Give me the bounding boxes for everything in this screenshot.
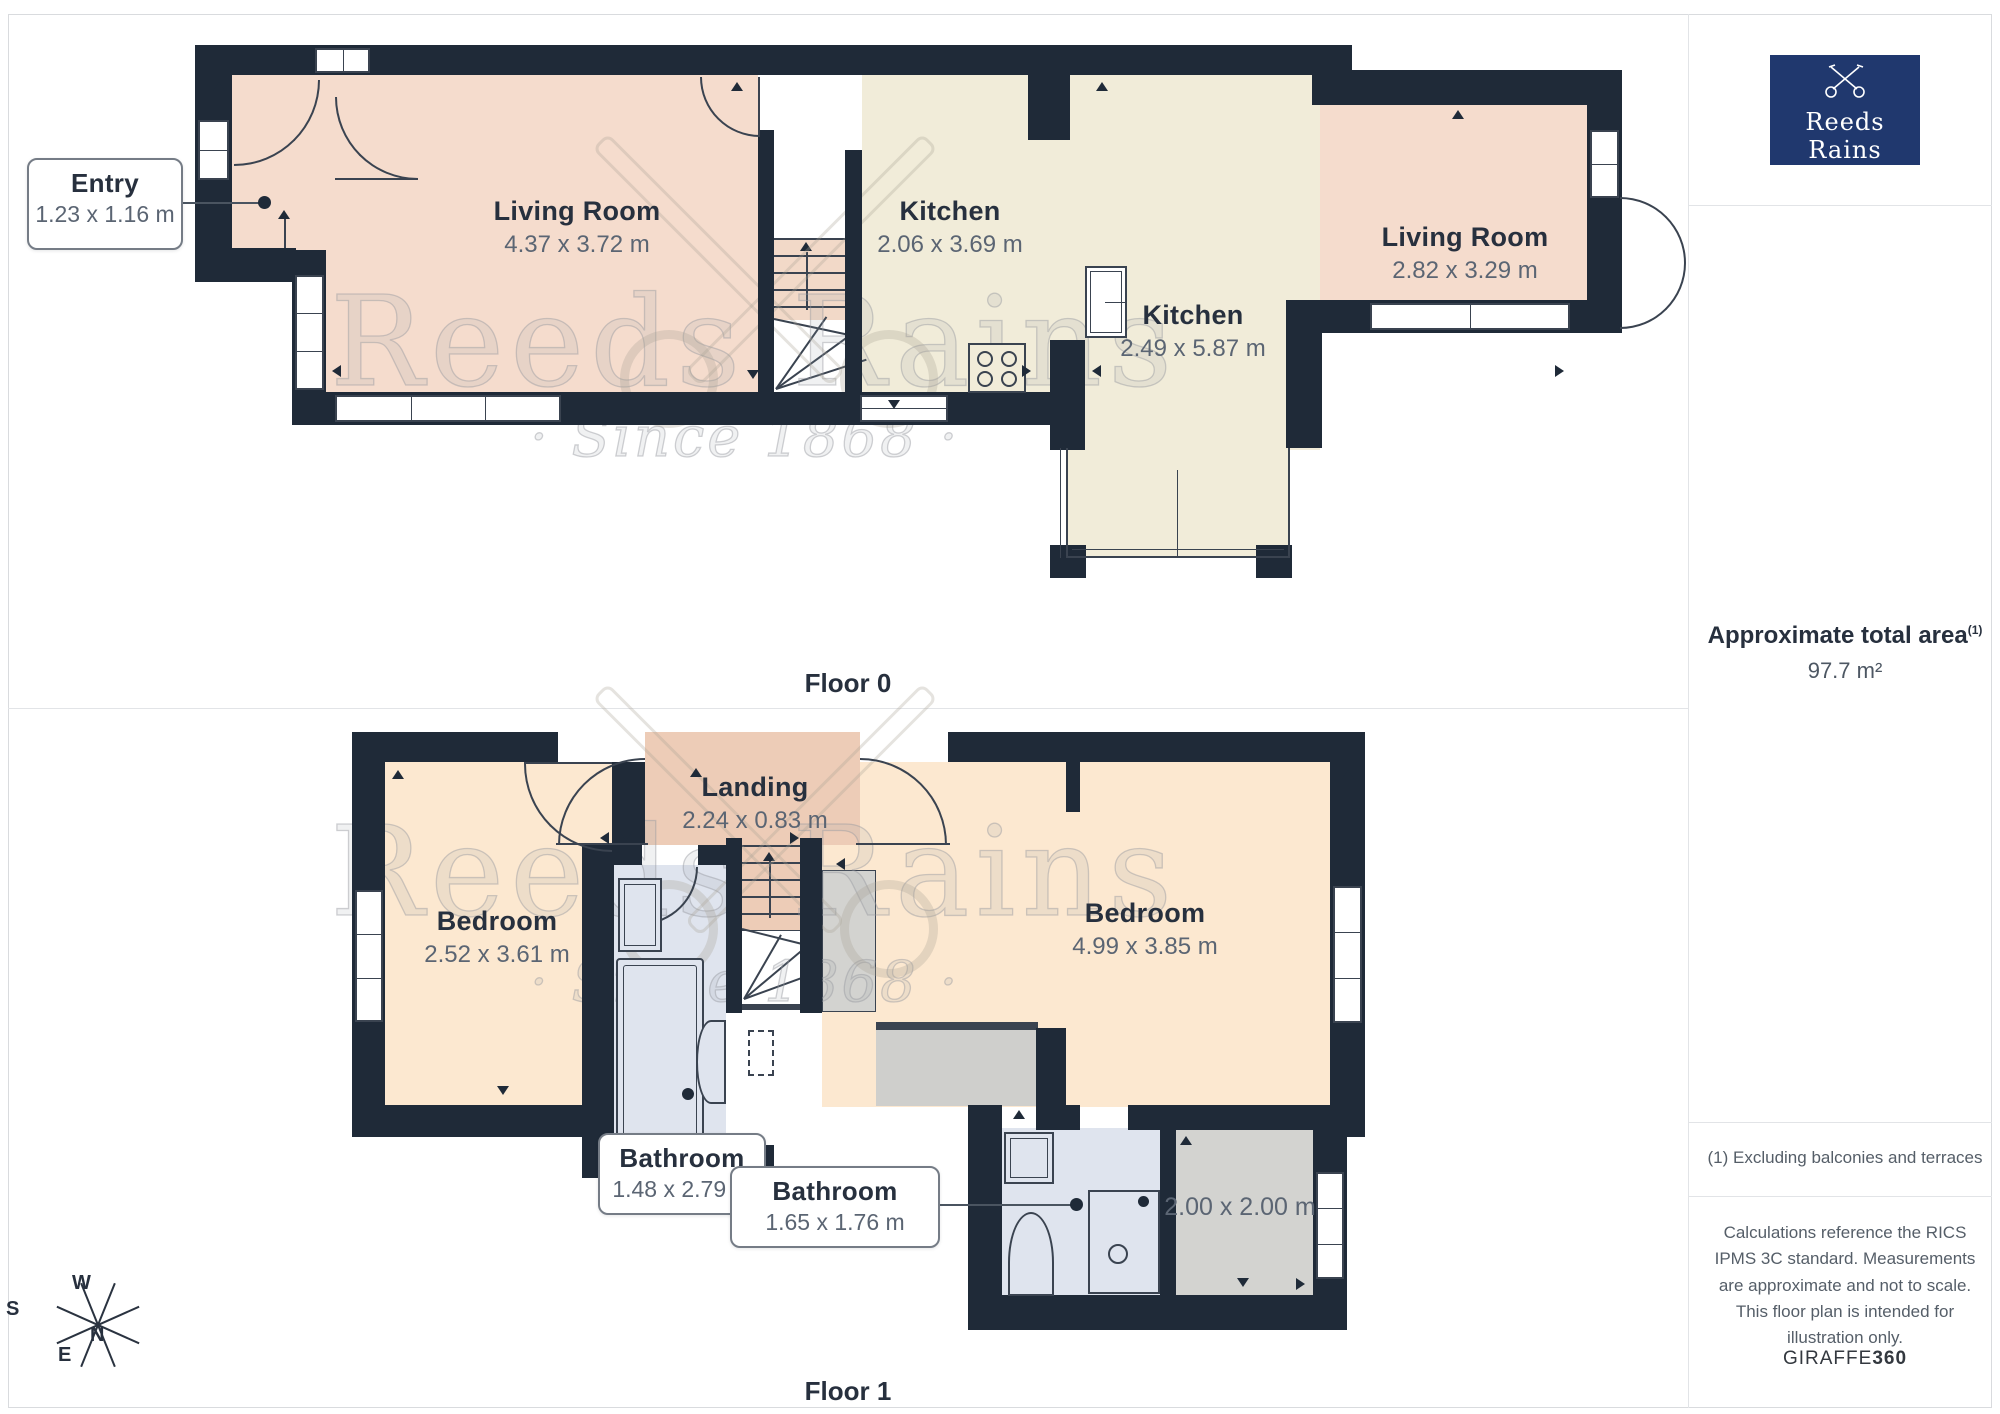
floor0-label: Floor 0 xyxy=(805,668,892,699)
shower-dot xyxy=(1138,1196,1149,1207)
living-room-2-area xyxy=(1320,105,1587,330)
floor1-label: Floor 1 xyxy=(805,1376,892,1407)
shower-icon xyxy=(1088,1190,1160,1294)
wall xyxy=(1330,70,1622,105)
watermark-key-ring xyxy=(840,880,938,978)
window xyxy=(335,395,561,422)
landing-label: Landing 2.24 x 0.83 m xyxy=(682,772,827,835)
footnote-text: (1) Excluding balconies and terraces xyxy=(1708,1148,1983,1168)
window xyxy=(198,120,229,180)
room-dims: 1.65 x 1.76 m xyxy=(738,1209,932,1236)
bay-window-mullion xyxy=(1177,470,1178,556)
leader-line xyxy=(940,1204,1072,1206)
giraffe-360-text: 360 xyxy=(1872,1348,1907,1369)
approx-area-label: Approximate total area xyxy=(1708,622,1968,649)
wall xyxy=(1066,762,1080,812)
leader-dot xyxy=(258,196,271,209)
wall xyxy=(1028,45,1070,140)
floorplan-page: Reeds Rains · Since 1868 · xyxy=(0,0,2000,1414)
room-name: Kitchen xyxy=(1120,300,1265,331)
room-name: Landing xyxy=(682,772,827,803)
bay-window-line xyxy=(1060,448,1061,558)
wall xyxy=(582,845,614,1150)
measure-arrow xyxy=(790,832,799,844)
giraffe-text: GIRAFFE xyxy=(1783,1348,1872,1369)
room-dims: 2.49 x 5.87 m xyxy=(1120,335,1265,363)
room-dims: 4.37 x 3.72 m xyxy=(494,231,661,259)
bay-window-line xyxy=(1072,549,1284,550)
measure-arrow xyxy=(1452,110,1464,119)
bathroom-2-label-box: Bathroom 1.65 x 1.76 m xyxy=(730,1166,940,1248)
wall xyxy=(845,150,862,395)
compass-rose: W S N E xyxy=(38,1278,158,1388)
measure-arrow xyxy=(888,400,900,409)
measure-arrow xyxy=(690,768,702,777)
wall xyxy=(876,1022,1038,1030)
stairwell-top xyxy=(774,75,845,238)
wall xyxy=(800,838,822,1013)
cupboard-icon xyxy=(748,1030,774,1076)
window xyxy=(355,890,383,1022)
bathtub-icon xyxy=(616,958,704,1146)
toilet-icon xyxy=(696,1020,726,1104)
store-room-label: 2.00 x 2.00 m xyxy=(1164,1193,1315,1222)
disclaimer-text: Calculations reference the RICS IPMS 3C … xyxy=(1703,1220,1987,1352)
room-name: Living Room xyxy=(1382,222,1549,253)
measure-arrow xyxy=(1555,365,1564,377)
measure-arrow xyxy=(1092,365,1101,377)
entry-label-box: Entry 1.23 x 1.16 m xyxy=(27,158,183,250)
measure-arrow xyxy=(1296,1278,1305,1290)
room-dims: 2.52 x 3.61 m xyxy=(424,941,569,969)
door-leaf xyxy=(856,843,950,845)
wall xyxy=(612,845,642,865)
living-room-1-label: Living Room 4.37 x 3.72 m xyxy=(494,196,661,259)
window xyxy=(295,275,324,390)
bedroom-1-label: Bedroom 2.52 x 3.61 m xyxy=(424,906,569,969)
room-dims: 2.00 x 2.00 m xyxy=(1164,1193,1315,1222)
giraffe360-credit: GIRAFFE360 xyxy=(1783,1348,1907,1370)
entry-arrow-head xyxy=(278,210,290,219)
approx-area-heading: Approximate total area(1) xyxy=(1708,622,1983,650)
compass-north: N xyxy=(90,1324,104,1347)
corridor-area xyxy=(876,1030,1036,1106)
crossed-keys-icon xyxy=(1817,63,1873,99)
kitchen-1-label: Kitchen 2.06 x 3.69 m xyxy=(877,196,1022,259)
sink-icon xyxy=(618,878,662,952)
measure-arrow xyxy=(1180,1136,1192,1145)
room-dims: 4.99 x 3.85 m xyxy=(1072,933,1217,961)
room-name: Bathroom xyxy=(738,1176,932,1207)
leader-line xyxy=(183,202,263,204)
approx-area-value: 97.7 m² xyxy=(1808,658,1883,684)
room-dims: 2.24 x 0.83 m xyxy=(682,807,827,835)
wall xyxy=(1312,45,1352,105)
compass-east: E xyxy=(58,1344,71,1367)
leader-dot xyxy=(1070,1198,1083,1211)
measure-arrow xyxy=(747,370,759,379)
door-leaf xyxy=(335,178,418,180)
reeds-rains-logo: Reeds Rains · Since 1868 · xyxy=(1770,55,1920,165)
wall xyxy=(968,1295,1347,1330)
measure-arrow xyxy=(1342,770,1354,779)
wall xyxy=(758,130,774,392)
kitchen-2-label: Kitchen 2.49 x 5.87 m xyxy=(1120,300,1265,363)
window xyxy=(860,395,948,422)
measure-arrow xyxy=(836,858,845,870)
window xyxy=(1333,886,1362,1023)
wall xyxy=(698,845,726,865)
sidebar-divider xyxy=(1688,14,1689,1408)
measure-arrow xyxy=(731,82,743,91)
bay-window-line xyxy=(1288,448,1290,558)
bay-window-line xyxy=(1066,556,1290,558)
measure-arrow xyxy=(1237,1278,1249,1287)
floor-section-divider xyxy=(8,708,1688,709)
door-leaf xyxy=(758,77,760,137)
measure-arrow xyxy=(1022,365,1031,377)
approx-area-footnote-ref: (1) xyxy=(1968,623,1983,637)
entry-direction-arrow xyxy=(284,218,286,248)
measure-arrow xyxy=(497,1086,509,1095)
door-leaf xyxy=(524,762,612,764)
sink-icon xyxy=(1004,1132,1054,1184)
door-hinge-dot xyxy=(682,1088,694,1100)
compass-west: W xyxy=(72,1272,91,1295)
living-room-2-label: Living Room 2.82 x 3.29 m xyxy=(1382,222,1549,285)
wall xyxy=(352,732,558,762)
sidebar-section-divider xyxy=(1689,1196,1992,1197)
wall xyxy=(1050,340,1085,450)
wall xyxy=(195,248,296,282)
sidebar-section-divider xyxy=(1689,205,1992,206)
kitchen-bay-area xyxy=(1066,448,1290,558)
room-dims: 1.23 x 1.16 m xyxy=(35,201,175,228)
measure-arrow xyxy=(620,832,632,841)
hob-icon xyxy=(968,343,1026,393)
measure-arrow xyxy=(213,82,225,91)
measure-arrow xyxy=(392,770,404,779)
room-name: Bedroom xyxy=(424,906,569,937)
compass-south: S xyxy=(6,1298,19,1321)
wall xyxy=(1286,300,1322,448)
wall xyxy=(352,1105,614,1137)
measure-arrow xyxy=(332,365,341,377)
window xyxy=(1590,130,1619,198)
room-name: Kitchen xyxy=(877,196,1022,227)
window xyxy=(1370,303,1570,330)
wall xyxy=(726,838,742,1013)
logo-tagline-text: · Since 1868 · xyxy=(1770,169,1920,182)
window xyxy=(315,48,370,73)
room-name: Bedroom xyxy=(1072,898,1217,929)
wall xyxy=(1036,1105,1080,1130)
bedroom-2-label: Bedroom 4.99 x 3.85 m xyxy=(1072,898,1217,961)
room-name: Entry xyxy=(35,168,175,199)
wall xyxy=(742,1004,800,1010)
wall xyxy=(948,732,1365,762)
sidebar-section-divider xyxy=(1689,1122,1992,1123)
window xyxy=(1316,1172,1344,1279)
measure-arrow xyxy=(1013,1110,1025,1119)
measure-arrow xyxy=(600,832,609,844)
bay-window-line xyxy=(1066,448,1068,558)
room-name: Living Room xyxy=(494,196,661,227)
room-dims: 2.82 x 3.29 m xyxy=(1382,257,1549,285)
room-dims: 2.06 x 3.69 m xyxy=(877,231,1022,259)
logo-brand-text: Reeds Rains xyxy=(1770,108,1920,164)
measure-arrow xyxy=(1096,82,1108,91)
